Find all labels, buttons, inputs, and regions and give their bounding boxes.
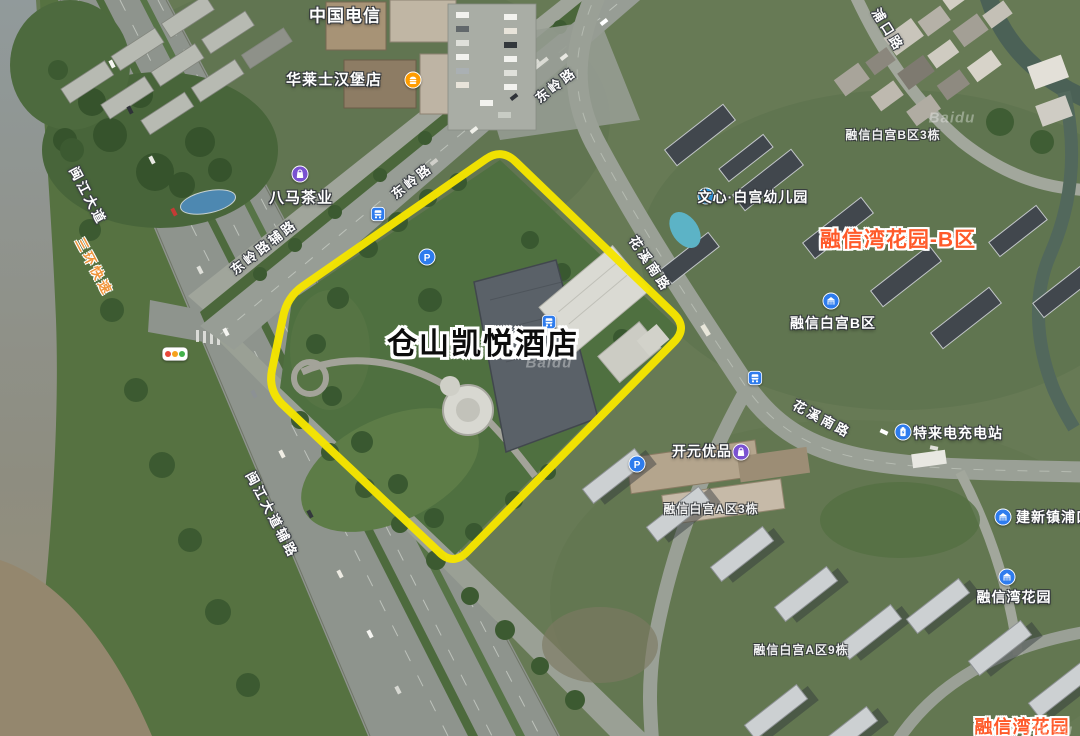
map-canvas[interactable]: PP 中国电信华莱士汉堡店八马茶业东岭路东岭路东岭路辅路仓山凯悦酒店文心·白宫幼…	[0, 0, 1080, 736]
highlight-polygon	[0, 0, 1080, 736]
